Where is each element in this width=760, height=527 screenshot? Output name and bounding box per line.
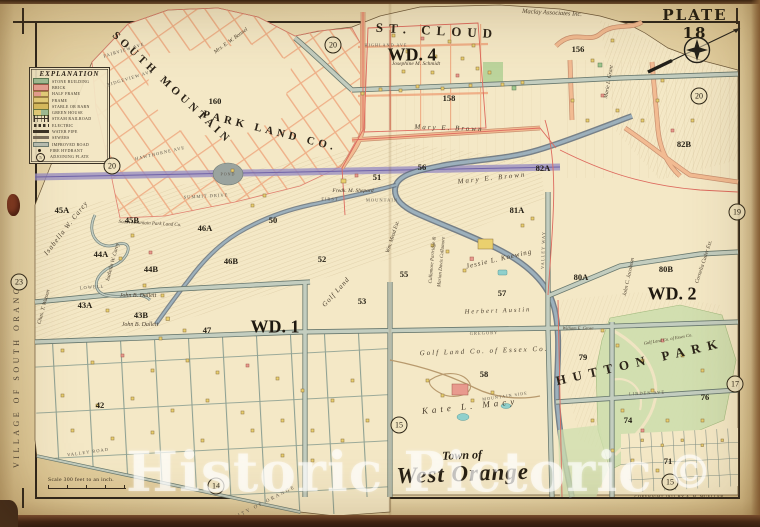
page-edge-right [751,0,760,527]
corner-stain [0,500,18,527]
legend-title: EXPLANATION [33,70,106,78]
photo-edge-top [0,0,760,4]
legend-item-label: FRAME [52,98,67,103]
legend-item-label: IMPROVED ROAD [52,142,89,147]
compass-rose-icon [640,20,750,82]
legend-item-label: FIRE HYDRANT [50,148,83,153]
hyd-swatch-icon [33,148,47,153]
scale-indicator: Scale 300 feet to an inch. [48,477,126,489]
pond [213,163,243,185]
rail-swatch-icon [33,115,49,122]
margin-stain [7,194,20,216]
legend-item-label: GREEN HOUSE [52,110,83,115]
photo-edge-bottom [0,515,760,527]
road-swatch-icon [33,142,49,147]
legend-item-label: ELECTRIC [52,123,74,128]
scale-bar [48,485,126,489]
atlas-page: EXPLANATION STONE BUILDINGBRICKHALF FRAM… [0,0,760,527]
map-legend: EXPLANATION STONE BUILDINGBRICKHALF FRAM… [29,67,110,164]
page-fold [388,0,392,516]
legend-item-label: STABLE OR BARN [52,104,90,109]
scale-text: Scale 300 feet to an inch. [48,477,126,483]
legend-item-label: SEWERS [52,135,70,140]
legend-item-label: BRICK [52,85,66,90]
legend-item-label: WATER PIPE [52,129,78,134]
map-title: Town of West Orange [379,445,545,490]
legend-item: 5ADJOINING PLATE [33,154,106,160]
elec-swatch-icon [33,124,49,127]
plate-swatch-icon: 5 [33,154,47,159]
legend-item-label: STEAM RAILROAD [52,116,91,121]
street-grid-corner [621,428,738,492]
sewer-swatch-icon [33,136,49,139]
legend-item-label: ADJOINING PLATE [50,154,89,159]
legend-item-label: HALF FRAME [52,91,80,96]
legend-item-label: STONE BUILDING [52,79,89,84]
copyright-line: COPYRIGHT 1911 BY A. H. MUELLER. [600,494,760,499]
water-swatch-icon [33,130,49,133]
